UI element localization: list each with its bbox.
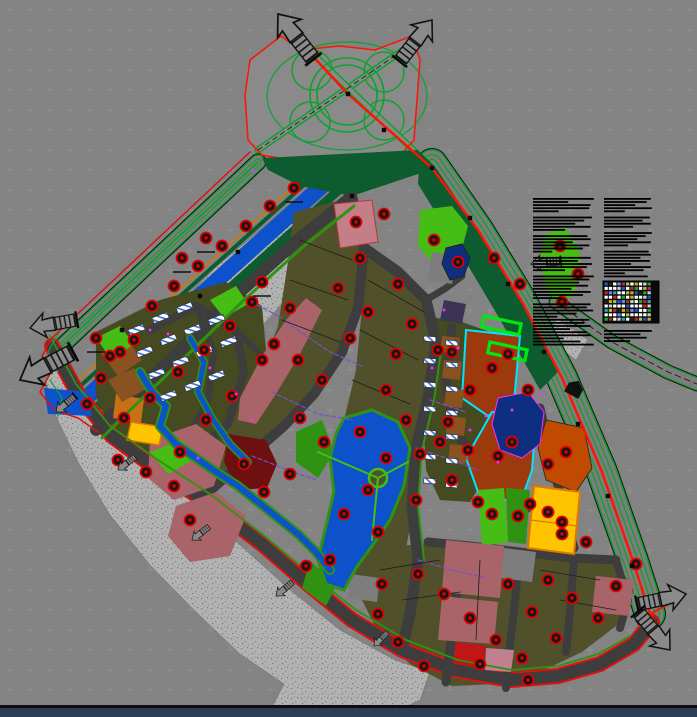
note-text-line (533, 328, 570, 330)
tree-symbol (293, 355, 304, 366)
node-marker (350, 194, 354, 198)
tree-symbol (381, 453, 392, 464)
house-row (446, 362, 458, 368)
tree-symbol (373, 609, 384, 620)
note-text-line (533, 297, 562, 299)
tree-symbol (247, 297, 258, 308)
node-marker (542, 350, 546, 354)
point-marker (149, 329, 152, 332)
legend-cell (609, 291, 612, 294)
house-row (446, 340, 458, 346)
house-row (424, 406, 436, 412)
point-marker (209, 367, 212, 370)
node-marker (346, 92, 350, 96)
legend-cell (630, 318, 633, 321)
parcel (442, 540, 504, 598)
legend-cell (613, 287, 616, 290)
note-text-line (533, 307, 587, 309)
note-text-line (533, 229, 565, 231)
house-row (424, 358, 436, 364)
tree-symbol (515, 279, 526, 290)
note-text-line (533, 276, 594, 278)
note-text-line (604, 204, 635, 206)
legend-cell (605, 296, 608, 299)
tree-symbol (317, 375, 328, 386)
legend-cell (639, 313, 642, 316)
house-row (446, 458, 458, 464)
tree-symbol (241, 221, 252, 232)
note-text-line (604, 223, 651, 225)
legend-cell (639, 309, 642, 312)
legend-cell (609, 318, 612, 321)
point-marker (457, 347, 460, 350)
tree-symbol (351, 217, 362, 228)
legend-cell (635, 283, 638, 286)
legend-cell (617, 313, 620, 316)
legend-cell (648, 291, 651, 294)
node-marker (120, 328, 124, 332)
tree-symbol (285, 303, 296, 314)
note-text-line (604, 217, 650, 219)
tree-symbol (503, 349, 514, 360)
legend-cell (626, 313, 629, 316)
note-text-line (604, 272, 625, 274)
tree-symbol (96, 373, 107, 384)
node-marker (430, 166, 434, 170)
legend-cell (639, 318, 642, 321)
tree-symbol (407, 319, 418, 330)
legend-cell (639, 287, 642, 290)
tree-symbol (119, 413, 130, 424)
note-text-line (604, 241, 651, 243)
tree-symbol (429, 235, 440, 246)
tree-symbol (415, 449, 426, 460)
tree-symbol (465, 385, 476, 396)
legend-cell (622, 305, 625, 308)
tree-symbol (393, 637, 404, 648)
legend-cell (617, 283, 620, 286)
point-marker (485, 415, 488, 418)
note-text-line (533, 291, 591, 293)
house-row (446, 410, 458, 416)
legend-cell (626, 305, 629, 308)
note-text-line (533, 279, 589, 281)
point-marker (469, 429, 472, 432)
tree-symbol (411, 495, 422, 506)
point-marker (225, 485, 228, 488)
tree-symbol (82, 399, 93, 410)
tree-symbol (259, 487, 270, 498)
note-text-line (533, 322, 584, 324)
note-text-line (604, 207, 652, 209)
tree-symbol (175, 447, 186, 458)
legend-cell (635, 305, 638, 308)
note-text-line (533, 319, 589, 321)
note-text-line (604, 226, 633, 228)
note-text-line (604, 232, 652, 234)
legend-cell (622, 291, 625, 294)
legend-cell (648, 283, 651, 286)
legend-cell (639, 300, 642, 303)
note-text-line (533, 201, 568, 203)
note-text-line (533, 338, 564, 340)
legend-cell (622, 318, 625, 321)
legend-cell (635, 291, 638, 294)
legend-cell (613, 305, 616, 308)
node-marker (576, 422, 580, 426)
tree-symbol (141, 467, 152, 478)
legend-cell (605, 283, 608, 286)
tree-symbol (199, 345, 210, 356)
point-marker (167, 333, 170, 336)
point-marker (197, 457, 200, 460)
legend-cell (626, 318, 629, 321)
tree-symbol (433, 345, 444, 356)
note-text-line (533, 269, 565, 271)
parcel (501, 548, 536, 582)
legend-cell (605, 300, 608, 303)
tree-symbol (145, 393, 156, 404)
legend-cell (609, 296, 612, 299)
tree-symbol (593, 613, 604, 624)
note-text-line (604, 266, 651, 268)
tree-symbol (557, 529, 568, 540)
legend-cell (617, 300, 620, 303)
tree-symbol (513, 511, 524, 522)
tree-symbol (611, 581, 622, 592)
note-text-line (604, 235, 646, 237)
legend-cell (609, 283, 612, 286)
tree-symbol (447, 475, 458, 486)
legend-cell (630, 309, 633, 312)
tree-symbol (363, 485, 374, 496)
tree-symbol (543, 507, 554, 518)
tree-symbol (393, 279, 404, 290)
legend-cell (630, 300, 633, 303)
note-text-line (604, 263, 631, 265)
legend-cell (643, 318, 646, 321)
note-text-line (533, 325, 591, 327)
note-text-line (533, 266, 587, 268)
legend-cell (648, 313, 651, 316)
note-text-line (604, 333, 640, 335)
tree-symbol (489, 253, 500, 264)
legend-cell (605, 287, 608, 290)
legend-cell (626, 283, 629, 286)
legend-cell (639, 296, 642, 299)
note-text-line (533, 344, 594, 346)
legend-cell (635, 300, 638, 303)
legend-cell (605, 313, 608, 316)
legend-cell (626, 300, 629, 303)
tree-symbol (381, 385, 392, 396)
note-text-line (533, 248, 583, 250)
tree-symbol (333, 283, 344, 294)
note-text-line (604, 337, 647, 339)
legend-cell (605, 309, 608, 312)
tree-symbol (453, 257, 464, 268)
tree-symbol (439, 589, 450, 600)
legend-cell (643, 291, 646, 294)
note-text-line (533, 251, 552, 253)
point-marker (431, 367, 434, 370)
note-text-line (604, 245, 628, 247)
tree-symbol (363, 307, 374, 318)
legend-cell (609, 309, 612, 312)
tree-symbol (487, 363, 498, 374)
node-marker (382, 128, 386, 132)
tree-symbol (257, 355, 268, 366)
legend-cell (617, 287, 620, 290)
legend-cell (639, 283, 642, 286)
house-row (424, 478, 436, 484)
tree-symbol (419, 661, 430, 672)
tree-symbol (285, 469, 296, 480)
legend-cell (643, 287, 646, 290)
legend-cell (635, 313, 638, 316)
legend-cell (605, 318, 608, 321)
status-bar (0, 708, 697, 717)
tree-symbol (319, 437, 330, 448)
tree-symbol (517, 653, 528, 664)
house-row (424, 382, 436, 388)
note-text-line (533, 238, 591, 240)
node-marker (606, 494, 610, 498)
legend-cell (605, 291, 608, 294)
house-row (446, 386, 458, 392)
tree-symbol (493, 451, 504, 462)
tree-symbol (289, 183, 300, 194)
legend-cell (648, 318, 651, 321)
tree-symbol (201, 415, 212, 426)
tree-symbol (129, 335, 140, 346)
legend-cell (609, 287, 612, 290)
legend-cell (617, 296, 620, 299)
legend-cell (635, 287, 638, 290)
legend-cell (622, 296, 625, 299)
note-text-line (533, 285, 588, 287)
tree-symbol (401, 415, 412, 426)
legend-cell (630, 283, 633, 286)
legend-cell (648, 287, 651, 290)
legend-cell (622, 283, 625, 286)
point-marker (251, 419, 254, 422)
legend-cell (630, 287, 633, 290)
tree-symbol (239, 459, 250, 470)
node-marker (198, 294, 202, 298)
legend-cell (643, 309, 646, 312)
legend-cell (613, 296, 616, 299)
parcel (348, 574, 380, 602)
tree-symbol (177, 253, 188, 264)
legend-cell (617, 318, 620, 321)
legend-cell (609, 300, 612, 303)
legend-cell (613, 291, 616, 294)
note-text-line (533, 294, 583, 296)
note-text-line (604, 340, 630, 342)
note-text-line (604, 201, 647, 203)
tree-symbol (105, 351, 116, 362)
parcel (440, 300, 466, 324)
house-row (424, 336, 436, 342)
tree-symbol (379, 209, 390, 220)
tree-symbol (325, 555, 336, 566)
note-text-line (533, 263, 592, 265)
note-text-line (604, 198, 651, 200)
tree-symbol (185, 515, 196, 526)
site-plan-drawing[interactable] (0, 0, 697, 717)
legend-cell (626, 291, 629, 294)
note-text-line (604, 269, 644, 271)
tree-symbol (463, 445, 474, 456)
note-text-line (533, 303, 591, 305)
node-marker (468, 216, 472, 220)
legend-cell (613, 313, 616, 316)
legend-cell (635, 309, 638, 312)
tree-symbol (301, 561, 312, 572)
tree-symbol (561, 447, 572, 458)
legend-cell (613, 283, 616, 286)
note-text-line (604, 254, 651, 256)
parcel (528, 486, 580, 554)
tree-symbol (503, 579, 514, 590)
note-text-line (533, 210, 559, 212)
tree-symbol (201, 233, 212, 244)
tree-symbol (567, 593, 578, 604)
legend-cell (622, 300, 625, 303)
note-text-line (604, 276, 648, 278)
legend-cell (622, 309, 625, 312)
point-marker (511, 409, 514, 412)
tree-symbol (525, 499, 536, 510)
note-text-line (533, 217, 592, 219)
house-row (446, 434, 458, 440)
tree-symbol (557, 517, 568, 528)
note-text-line (533, 207, 589, 209)
tree-symbol (257, 277, 268, 288)
tree-symbol (169, 481, 180, 492)
tree-symbol (473, 497, 484, 508)
note-text-line (533, 257, 591, 259)
note-text-line (604, 210, 625, 212)
legend-cell (613, 318, 616, 321)
house-row (424, 430, 436, 436)
note-text-line (533, 334, 591, 336)
note-text-line (533, 331, 587, 333)
tree-symbol (217, 241, 228, 252)
tree-symbol (147, 301, 158, 312)
legend-cell (617, 309, 620, 312)
legend-cell (626, 287, 629, 290)
tree-symbol (413, 569, 424, 580)
legend-cell (643, 283, 646, 286)
tree-symbol (377, 579, 388, 590)
note-text-line (604, 238, 637, 240)
legend-cell (630, 305, 633, 308)
tree-symbol (269, 339, 280, 350)
tree-symbol (551, 633, 562, 644)
legend-cell (643, 305, 646, 308)
note-text-line (533, 260, 578, 262)
legend-cell (622, 313, 625, 316)
legend-cell (635, 318, 638, 321)
note-text-line (533, 245, 589, 247)
status-bar-divider (0, 705, 697, 708)
legend-cell (609, 313, 612, 316)
legend-cell (630, 296, 633, 299)
point-marker (235, 393, 238, 396)
node-marker (630, 564, 634, 568)
note-text-line (604, 260, 650, 262)
tree-symbol (447, 347, 458, 358)
legend-cell (617, 291, 620, 294)
point-marker (497, 461, 500, 464)
legend-cell (626, 296, 629, 299)
legend-cell (639, 291, 642, 294)
point-marker (252, 170, 255, 173)
legend-cell (609, 305, 612, 308)
legend-cell (639, 305, 642, 308)
drawing-viewport[interactable] (0, 0, 697, 717)
tree-symbol (523, 675, 534, 686)
legend-cell (613, 309, 616, 312)
note-text-line (533, 204, 591, 206)
legend-cell (630, 291, 633, 294)
note-text-line (533, 198, 594, 200)
tree-symbol (507, 437, 518, 448)
note-text-line (533, 282, 579, 284)
note-text-line (604, 220, 642, 222)
legend-table (603, 281, 659, 323)
tree-symbol (355, 427, 366, 438)
note-text-line (533, 341, 580, 343)
tree-symbol (373, 527, 384, 538)
point-marker (443, 309, 446, 312)
tree-symbol (91, 333, 102, 344)
legend-cell (643, 313, 646, 316)
tree-symbol (443, 417, 454, 428)
note-text-line (533, 241, 573, 243)
legend-cell (648, 305, 651, 308)
legend-cell (648, 300, 651, 303)
legend-cell (605, 305, 608, 308)
note-text-line (533, 310, 593, 312)
tree-symbol (265, 201, 276, 212)
tree-symbol (523, 385, 534, 396)
tree-symbol (345, 333, 356, 344)
tree-symbol (193, 261, 204, 272)
legend-cell (617, 305, 620, 308)
tree-symbol (169, 281, 180, 292)
tree-symbol (225, 321, 236, 332)
legend-cell (643, 296, 646, 299)
tree-symbol (355, 253, 366, 264)
tree-symbol (487, 509, 498, 520)
note-text-line (533, 220, 584, 222)
note-text-line (604, 257, 640, 259)
tree-symbol (173, 367, 184, 378)
note-text-line (604, 251, 649, 253)
node-marker (506, 282, 510, 286)
tree-symbol (475, 659, 486, 670)
point-marker (539, 393, 542, 396)
tree-symbol (227, 391, 238, 402)
tree-symbol (435, 437, 446, 448)
node-marker (236, 250, 240, 254)
tree-symbol (465, 613, 476, 624)
note-text-line (533, 316, 557, 318)
tree-symbol (339, 509, 350, 520)
